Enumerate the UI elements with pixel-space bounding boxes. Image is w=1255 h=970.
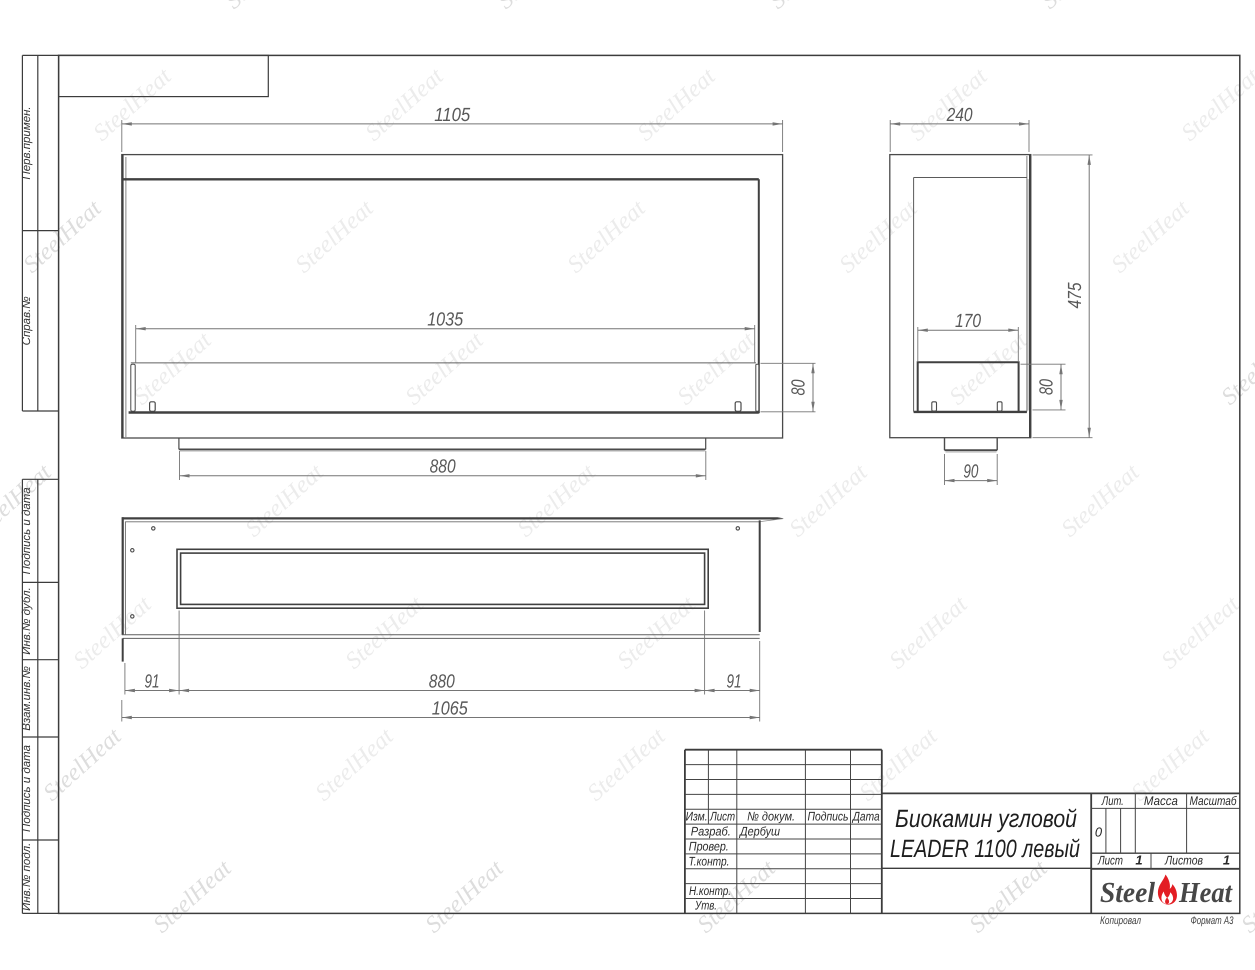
svg-text:Heat: Heat <box>1178 877 1233 909</box>
svg-text:Steel: Steel <box>1100 877 1156 909</box>
svg-text:Биокамин угловой: Биокамин угловой <box>895 805 1077 833</box>
svg-text:80: 80 <box>789 379 810 395</box>
svg-text:Провер.: Провер. <box>689 839 729 853</box>
svg-text:0: 0 <box>1095 825 1103 840</box>
svg-text:№ докум.: № докум. <box>747 810 795 824</box>
svg-text:Перв.примен.: Перв.примен. <box>21 106 33 179</box>
svg-text:880: 880 <box>429 671 455 692</box>
svg-text:Лист: Лист <box>709 810 735 824</box>
svg-text:Лист: Лист <box>1097 854 1123 868</box>
svg-text:Разраб.: Разраб. <box>691 825 731 839</box>
svg-text:91: 91 <box>727 671 742 692</box>
svg-text:Инв.№ дубл.: Инв.№ дубл. <box>21 587 33 655</box>
svg-text:Утв.: Утв. <box>694 899 717 913</box>
svg-text:Формат А3: Формат А3 <box>1191 915 1235 927</box>
svg-text:Н.контр.: Н.контр. <box>689 884 731 898</box>
svg-text:Масса: Масса <box>1144 794 1178 808</box>
svg-text:880: 880 <box>430 457 456 478</box>
svg-text:1: 1 <box>1223 853 1230 868</box>
svg-text:240: 240 <box>946 105 973 126</box>
svg-text:Справ.№: Справ.№ <box>21 296 33 346</box>
svg-text:Копировал: Копировал <box>1100 915 1141 927</box>
svg-text:1: 1 <box>1135 853 1142 868</box>
svg-text:90: 90 <box>963 461 978 482</box>
svg-text:Т.контр.: Т.контр. <box>689 854 730 868</box>
svg-text:Изм.: Изм. <box>686 810 708 824</box>
svg-text:Листов: Листов <box>1164 854 1203 868</box>
svg-text:Подпись: Подпись <box>808 810 849 824</box>
svg-text:1065: 1065 <box>432 698 468 719</box>
svg-text:Лит.: Лит. <box>1101 794 1124 808</box>
svg-text:LEADER 1100 левый: LEADER 1100 левый <box>890 835 1080 863</box>
svg-text:Дата: Дата <box>851 810 880 824</box>
svg-text:80: 80 <box>1037 379 1058 395</box>
svg-text:1035: 1035 <box>427 310 463 331</box>
svg-text:1105: 1105 <box>434 105 470 126</box>
svg-text:Масштаб: Масштаб <box>1190 794 1238 808</box>
svg-text:Дербуш: Дербуш <box>738 825 780 839</box>
svg-text:Подпись и дата: Подпись и дата <box>21 745 33 832</box>
svg-text:Взам.инв.№: Взам.инв.№ <box>21 665 33 730</box>
svg-text:Инв.№ подл.: Инв.№ подл. <box>21 843 33 911</box>
svg-text:475: 475 <box>1065 282 1086 308</box>
svg-text:170: 170 <box>955 311 981 332</box>
svg-text:Подпись и дата: Подпись и дата <box>21 487 33 574</box>
svg-text:91: 91 <box>145 671 160 692</box>
